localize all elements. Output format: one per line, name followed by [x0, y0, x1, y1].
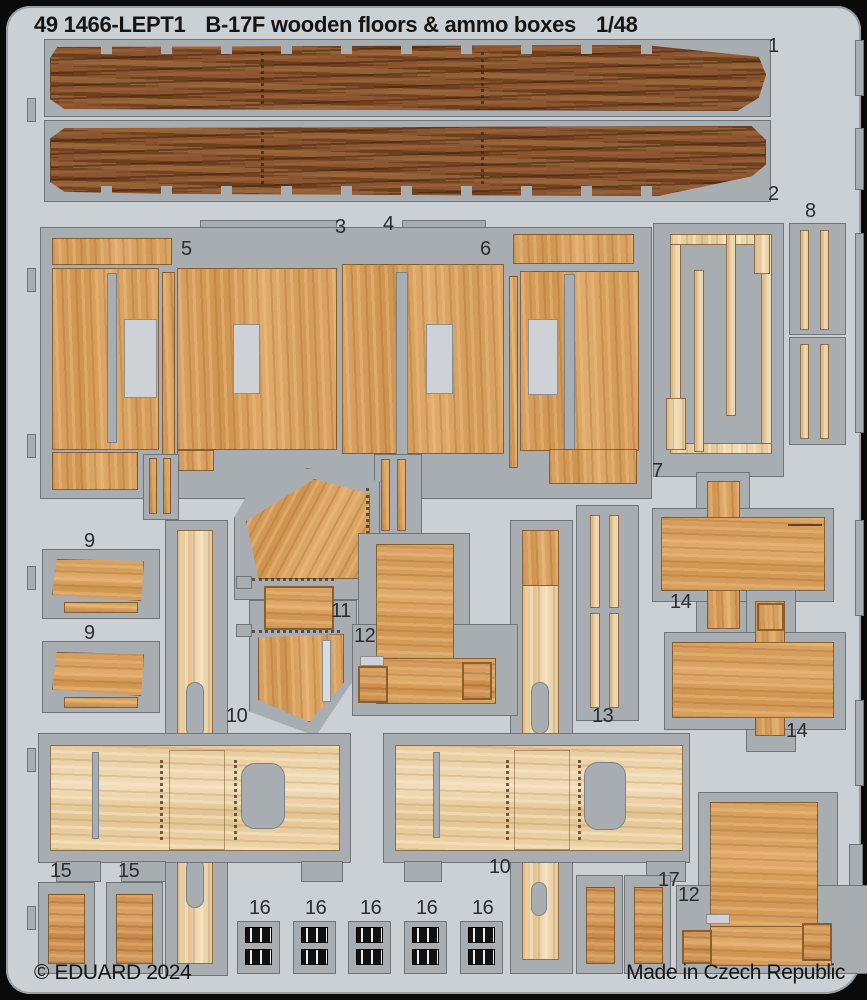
floor-tab	[404, 861, 442, 882]
board-overlap	[169, 750, 225, 850]
buckle	[245, 949, 272, 965]
buckle	[301, 927, 328, 943]
part-14-crease	[788, 524, 822, 526]
floor-cutout	[124, 319, 157, 398]
part-number-label: 7	[652, 461, 663, 481]
part-number-label: 15	[118, 861, 139, 881]
part-14-cross	[672, 642, 834, 718]
rivet-line	[578, 760, 581, 840]
part-8-frame	[789, 223, 846, 335]
part-8-strip	[800, 230, 809, 330]
spar-slot	[531, 682, 549, 734]
floor-tab	[301, 861, 343, 882]
part-number-label: 14	[670, 592, 691, 612]
part-number-label: 10	[489, 857, 510, 877]
part-12-notch	[706, 914, 730, 924]
part-13-strip	[590, 613, 600, 708]
rivet-line	[481, 52, 484, 104]
part-number-label: 9	[84, 531, 95, 551]
part-number-label: 16	[249, 898, 270, 918]
catalog-number: 49 1466-LEPT1	[34, 13, 185, 37]
part-number-label: 16	[416, 898, 437, 918]
part-number-label: 9	[84, 623, 95, 643]
header-title: 49 1466-LEPT1 B-17F wooden floors & ammo…	[34, 13, 638, 37]
part-number-label: 3	[335, 217, 346, 237]
rivet-line	[261, 132, 264, 184]
part-number-label: 16	[305, 898, 326, 918]
part-11-tab	[236, 624, 252, 637]
part-8-strip	[820, 230, 829, 330]
part-number-label: 16	[472, 898, 493, 918]
part-13-strip	[609, 515, 619, 608]
floor-cutout	[528, 319, 558, 395]
hanging-strip	[397, 459, 406, 531]
part-7-pad	[666, 398, 686, 450]
part-15-panel	[48, 894, 85, 964]
part-12-flap	[462, 662, 492, 700]
board-overlap	[514, 750, 570, 850]
part-9-panel	[52, 559, 144, 601]
part-12-body	[710, 802, 818, 930]
part-8-strip	[820, 344, 829, 439]
part-11-lid	[264, 586, 334, 630]
buckle	[412, 949, 439, 965]
edge-tab	[855, 700, 864, 786]
part-1-notches	[101, 44, 667, 54]
part-number-label: 12	[354, 626, 375, 646]
part-number-label: 16	[360, 898, 381, 918]
edge-tab	[855, 128, 864, 190]
edge-tab	[855, 40, 864, 96]
buckle	[356, 949, 383, 965]
part-11-slot	[322, 640, 331, 702]
buckle	[301, 949, 328, 965]
rivet-line	[261, 52, 264, 104]
spar-slot	[186, 858, 204, 908]
part-17-panel	[634, 887, 663, 964]
rivet-line	[481, 132, 484, 184]
part-number-label: 13	[592, 706, 613, 726]
part-15-panel	[116, 894, 153, 964]
buckle	[468, 927, 495, 943]
floor-slot	[564, 274, 575, 450]
part-number-label: 14	[786, 721, 807, 741]
board-slot	[92, 752, 99, 839]
part-number-label: 17	[658, 870, 679, 890]
floor-wood	[342, 264, 504, 454]
part-number-label: 1	[768, 36, 779, 56]
part-number-label: 12	[678, 885, 699, 905]
edge-tab	[27, 98, 36, 122]
part-8-frame	[789, 337, 846, 445]
part-number-label: 8	[805, 201, 816, 221]
part-10-spar-top	[522, 530, 559, 586]
part-number-label: 11	[331, 601, 351, 621]
part-17-panel	[586, 887, 615, 964]
edge-tab	[855, 520, 864, 616]
part-9-strip	[64, 697, 138, 708]
part-number-label: 2	[768, 184, 779, 204]
made-in-text: Made in Czech Republic	[626, 962, 845, 983]
part-7-strip	[694, 270, 704, 452]
floor-slot	[396, 272, 408, 468]
rivet-line	[252, 578, 334, 581]
edge-tab	[27, 748, 36, 772]
product-name: B-17F wooden floors & ammo boxes	[205, 13, 576, 37]
floor-wood	[509, 276, 518, 468]
floor-cutout	[233, 324, 260, 394]
part-13-frame	[576, 505, 639, 721]
floor-cutout	[426, 324, 453, 394]
buckle	[245, 927, 272, 943]
spar-slot	[531, 882, 547, 916]
part-1-plank	[50, 45, 766, 111]
edge-tab	[27, 268, 36, 292]
part-8-strip	[800, 344, 809, 439]
edge-tab	[27, 434, 36, 458]
board-slot	[433, 752, 440, 838]
part-12-notch	[360, 656, 384, 666]
floor-wood	[52, 238, 172, 265]
buckle	[412, 927, 439, 943]
hanging-strip	[163, 458, 171, 514]
buckle	[356, 927, 383, 943]
part-2-notches	[101, 186, 667, 196]
floor-wood	[177, 450, 214, 471]
hanging-strip	[149, 458, 157, 514]
part-12-flap	[358, 666, 388, 703]
buckle	[468, 949, 495, 965]
board-cutout	[241, 763, 285, 829]
floor-wood	[513, 234, 634, 264]
floor-wood	[52, 452, 138, 490]
rivet-line	[506, 760, 509, 840]
edge-tab	[855, 233, 864, 433]
copyright-text: © EDUARD 2024	[34, 962, 191, 983]
rivet-line	[160, 760, 163, 840]
rivet-line	[252, 630, 340, 633]
board-cutout	[584, 762, 626, 830]
edge-tab	[27, 566, 36, 590]
part-9-strip	[64, 602, 138, 613]
part-number-label: 10	[226, 706, 247, 726]
part-13-strip	[590, 515, 600, 608]
scale-marking: 1/48	[596, 13, 638, 37]
part-number-label: 4	[383, 214, 394, 234]
part-number-label: 15	[50, 861, 71, 881]
part-12-flap	[682, 930, 712, 964]
floor-slot	[107, 273, 117, 443]
part-9-panel	[52, 652, 144, 696]
part-7-pad	[754, 234, 770, 274]
part-number-label: 5	[181, 239, 192, 259]
part-14-lid	[757, 603, 784, 631]
part-13-strip	[609, 613, 619, 708]
edge-tab	[27, 906, 36, 930]
part-7-strip	[726, 234, 736, 416]
part-number-label: 6	[480, 239, 491, 259]
part-12-body	[376, 544, 454, 660]
spar-slot	[186, 682, 204, 738]
part-11-tab	[236, 576, 252, 589]
floor-wood	[549, 449, 637, 484]
hanging-strip	[381, 459, 390, 531]
part-14-cross	[661, 517, 825, 591]
photoetch-plate: 49 1466-LEPT1 B-17F wooden floors & ammo…	[6, 6, 861, 994]
floor-wood	[162, 272, 175, 472]
rivet-line	[234, 760, 237, 840]
part-12-flap	[802, 923, 832, 961]
